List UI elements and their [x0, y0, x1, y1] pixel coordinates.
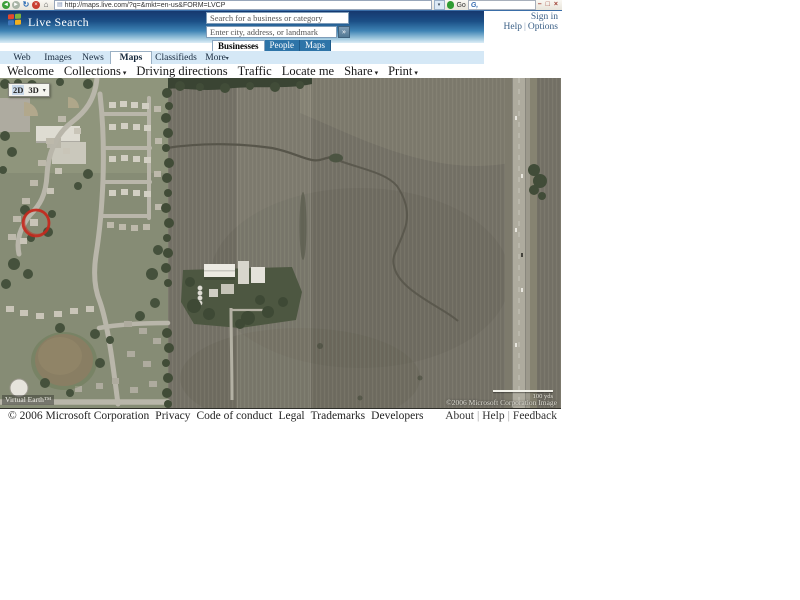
- footer-privacy-link[interactable]: Privacy: [155, 410, 190, 422]
- url-text: http://maps.live.com/?q=&mkt=en-us&FORM=…: [65, 2, 226, 9]
- tab-more[interactable]: More▾: [201, 52, 233, 64]
- separator: |: [508, 410, 510, 422]
- footer-about-link[interactable]: About: [445, 410, 474, 422]
- footer-developers-link[interactable]: Developers: [371, 410, 423, 422]
- live-search-header: Live Search »: [0, 11, 484, 43]
- nav-locate-me[interactable]: Locate me: [282, 64, 334, 79]
- tab-businesses[interactable]: Businesses: [212, 40, 265, 51]
- forward-icon[interactable]: ►: [12, 1, 20, 9]
- tab-news[interactable]: News: [78, 52, 108, 64]
- scope-tabs: Businesses People Maps: [212, 40, 331, 51]
- page-icon: ▤: [57, 1, 63, 9]
- home-icon[interactable]: ⌂: [42, 1, 50, 9]
- tab-maps-scope[interactable]: Maps: [300, 40, 331, 51]
- map-attribution: ©2006 Microsoft Corporation Image: [446, 398, 557, 407]
- nav-share[interactable]: Share▾: [344, 64, 378, 79]
- maps-nav-row: Welcome Collections▾ Driving directions …: [0, 64, 561, 78]
- window-controls: – □ ×: [538, 0, 560, 10]
- view-3d-button[interactable]: 3D: [27, 85, 39, 95]
- browser-go-icon[interactable]: [447, 1, 455, 9]
- sign-in-link[interactable]: Sign in: [531, 12, 558, 22]
- windows-flag-icon: [8, 14, 21, 27]
- restore-icon[interactable]: □: [546, 0, 550, 10]
- location-search-input[interactable]: [206, 26, 337, 38]
- tab-images[interactable]: Images: [40, 52, 76, 64]
- footer-trademarks-link[interactable]: Trademarks: [311, 410, 366, 422]
- refresh-icon[interactable]: ↻: [22, 1, 30, 9]
- map-view-toggle: 2D 3D ▾: [8, 83, 50, 97]
- business-search-input[interactable]: [206, 12, 349, 24]
- addon-search-logo-icon: G,: [471, 2, 478, 9]
- addon-search-box[interactable]: G,: [468, 0, 536, 10]
- back-icon[interactable]: ◄: [2, 1, 10, 9]
- url-dropdown-icon[interactable]: ▾: [434, 0, 445, 10]
- footer-code-of-conduct-link[interactable]: Code of conduct: [196, 410, 272, 422]
- minimize-icon[interactable]: –: [538, 0, 542, 10]
- footer-feedback-link[interactable]: Feedback: [513, 410, 557, 422]
- dropdown-arrow-icon: ▾: [123, 69, 127, 77]
- nav-collections[interactable]: Collections▾: [64, 64, 126, 79]
- satellite-imagery[interactable]: [0, 78, 561, 408]
- search-tabs-row: Web Images News Maps Classifieds More▾: [0, 51, 484, 64]
- brand-logo-text: Live Search: [28, 15, 89, 30]
- account-links: Sign in Help|Options: [504, 12, 558, 32]
- footer-help-link[interactable]: Help: [482, 410, 504, 422]
- browser-go-label[interactable]: Go: [456, 2, 465, 9]
- page-footer: © 2006 Microsoft Corporation Privacy Cod…: [0, 410, 562, 424]
- separator: |: [477, 410, 479, 422]
- nav-traffic[interactable]: Traffic: [238, 64, 272, 79]
- dropdown-arrow-icon: ▾: [414, 69, 418, 77]
- url-bar[interactable]: ▤ http://maps.live.com/?q=&mkt=en-us&FOR…: [54, 0, 432, 10]
- footer-copyright: © 2006 Microsoft Corporation: [8, 410, 149, 422]
- tab-web[interactable]: Web: [8, 52, 36, 64]
- tab-people[interactable]: People: [265, 40, 301, 51]
- dropdown-arrow-icon: ▾: [226, 56, 229, 62]
- nav-welcome[interactable]: Welcome: [7, 64, 54, 79]
- stop-icon[interactable]: ×: [32, 1, 40, 9]
- scale-bar: [493, 390, 553, 392]
- view-2d-button[interactable]: 2D: [12, 85, 24, 95]
- tab-classifieds[interactable]: Classifieds: [152, 52, 200, 64]
- help-link[interactable]: Help: [504, 22, 522, 32]
- footer-legal-link[interactable]: Legal: [278, 410, 304, 422]
- nav-print[interactable]: Print▾: [388, 64, 418, 79]
- search-go-button[interactable]: »: [338, 26, 350, 38]
- nav-driving-directions[interactable]: Driving directions: [136, 64, 227, 79]
- close-icon[interactable]: ×: [554, 0, 558, 10]
- dropdown-arrow-icon: ▾: [375, 69, 379, 77]
- separator: |: [524, 22, 526, 32]
- browser-toolbar: ◄ ► ↻ × ⌂ ▤ http://maps.live.com/?q=&mkt…: [0, 0, 562, 10]
- virtual-earth-watermark: Virtual Earth™: [2, 395, 54, 405]
- map-view-dropdown-icon[interactable]: ▾: [43, 87, 46, 94]
- options-link[interactable]: Options: [528, 22, 558, 32]
- map-viewport[interactable]: 2D 3D ▾ Virtual Earth™ 100 yds ©2006 Mic…: [0, 78, 561, 409]
